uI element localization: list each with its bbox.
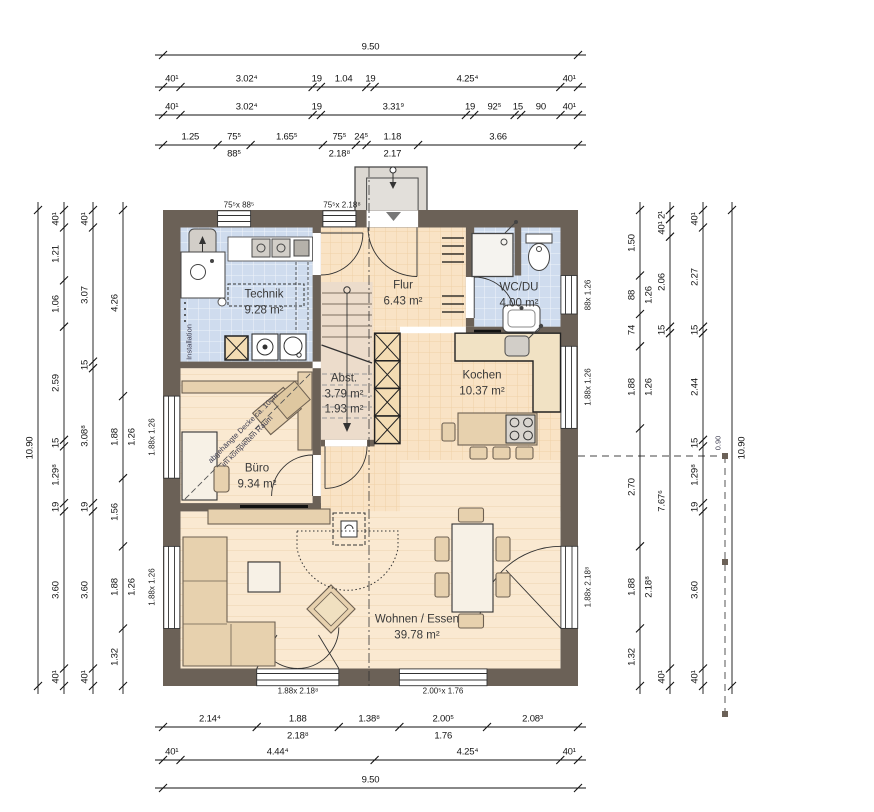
dim-sub-label: 88⁵ <box>227 149 241 160</box>
window-size-label: 1.88x 1.26 <box>148 568 157 605</box>
dim-label: 1.29⁸ <box>51 464 62 486</box>
dim-label: 1.88 <box>289 714 307 725</box>
window-size-label: 88x 1.26 <box>584 280 593 311</box>
dim-label: 1.88 <box>110 579 121 597</box>
dim-label: 40¹ <box>51 671 62 684</box>
dim-label: 40¹ <box>51 212 62 225</box>
dim-label: 3.66 <box>489 132 507 143</box>
dim-label: 1.50 <box>627 234 638 252</box>
window-size-label: 1.88x 1.26 <box>584 368 593 405</box>
dim-label: 74 <box>627 325 638 335</box>
dim-label: 2.14⁴ <box>199 714 221 725</box>
dim-label: 1.32 <box>110 648 121 666</box>
room-label-wohnen-essen: Wohnen / Essen39.78 m² <box>375 612 459 643</box>
dim-label: 40¹ <box>80 212 91 225</box>
dim-label: 15 <box>513 102 523 113</box>
dim-label: 1.38⁸ <box>358 714 380 725</box>
dim-label: 40¹ <box>690 212 701 225</box>
dim-label: 1.21 <box>51 245 62 263</box>
dim-label: 4.26 <box>110 294 121 312</box>
dim-label: 9.50 <box>362 42 380 53</box>
dim-label: 90 <box>536 102 546 113</box>
dim-label: 10.90 <box>737 437 748 460</box>
dim-label: 19 <box>365 74 375 85</box>
dim-label: 15 <box>80 360 91 370</box>
dim-label: 2.59 <box>51 374 62 392</box>
room-label-b-ro: Büro9.34 m² <box>238 461 277 492</box>
dim-label: 92⁵ <box>487 102 501 113</box>
dim-label: 9.50 <box>362 775 380 786</box>
dim-label: 15 <box>657 325 668 335</box>
dim-label: 19 <box>465 102 475 113</box>
dim-label: 19 <box>51 502 62 512</box>
dim-label: 75⁵ <box>227 132 241 143</box>
window-size-label: 75⁵x 2.18⁸ <box>323 201 360 210</box>
dim-label: 75⁵ <box>332 132 346 143</box>
dim-label: 1.88 <box>110 428 121 446</box>
dim-label: 7.67⁶ <box>657 490 668 511</box>
dim-label: 2.70 <box>627 478 638 496</box>
dim-sub-label: 1.76 <box>434 731 452 742</box>
dim-label: 3.60 <box>80 581 91 599</box>
room-label-abst-: Abst.3.79 m²1.93 m² <box>325 372 364 419</box>
dim-label: 3.07 <box>80 286 91 304</box>
dim-label: 19 <box>690 502 701 512</box>
dim-label: 1.88 <box>627 378 638 396</box>
room-label-flur: Flur6.43 m² <box>384 278 423 309</box>
dim-label: 15 <box>51 438 62 448</box>
dim-sub-label: 2.18⁸ <box>644 577 655 599</box>
dim-label: 40¹ <box>165 74 178 85</box>
window-size-label: 1.88x 2.18⁸ <box>584 567 593 608</box>
dim-label: 40¹ <box>657 671 668 684</box>
dim-label: 2.00⁵ <box>432 714 453 725</box>
dim-label: 15 <box>690 325 701 335</box>
window-size-label: 1.88x 2.18⁸ <box>278 687 319 696</box>
dim-label: 3.08⁸ <box>80 425 91 447</box>
dim-label: 2.27 <box>690 268 701 286</box>
room-label-wc-du: WC/DU4.00 m² <box>500 280 539 311</box>
dim-label: 1.06 <box>51 295 62 313</box>
dim-label: 40¹ <box>563 74 576 85</box>
dim-label: 40¹ <box>80 671 91 684</box>
dim-label: 40¹ <box>657 221 668 234</box>
dim-label: 1.04 <box>335 74 353 85</box>
dim-label: 1.56 <box>110 503 121 521</box>
dim-label: 3.60 <box>51 581 62 599</box>
room-label-kochen: Kochen10.37 m² <box>459 368 504 399</box>
annotation: Installation <box>185 324 194 360</box>
dim-label: 1.18 <box>383 132 401 143</box>
dim-label: 3.02⁴ <box>236 74 258 85</box>
dim-label: 10.90 <box>25 437 36 460</box>
window-size-label: 75⁵x 88⁵ <box>224 201 255 210</box>
dim-label: 1.65⁵ <box>276 132 297 143</box>
dim-label: 19 <box>312 74 322 85</box>
dim-sub-label: 2.17 <box>383 149 401 160</box>
dim-sub-label: 2.18⁸ <box>287 731 309 742</box>
dim-label: 40¹ <box>165 102 178 113</box>
dim-label: 19 <box>80 502 91 512</box>
dim-label: 1.29⁸ <box>690 464 701 486</box>
room-label-technik: Technik9.28 m² <box>245 287 284 318</box>
dim-label: 40¹ <box>690 671 701 684</box>
dim-label: 1.32 <box>627 648 638 666</box>
dim-label: 40¹ <box>563 102 576 113</box>
dim-label: 3.02⁴ <box>236 102 258 113</box>
dim-label: 24⁵ <box>354 132 368 143</box>
dim-label: 3.60 <box>690 581 701 599</box>
dim-label: 15 <box>690 438 701 448</box>
dim-sub-label: 1.26 <box>644 378 655 396</box>
dim-label: 88 <box>627 290 638 300</box>
dim-label: 40¹ <box>563 747 576 758</box>
floor-plan-canvas: 9.5040¹3.02⁴191.04194.25⁴40¹40¹3.02⁴193.… <box>0 0 874 812</box>
dim-label: 2.44 <box>690 378 701 396</box>
dim-sub-label: 2.18⁸ <box>329 149 351 160</box>
dim-label: 19 <box>312 102 322 113</box>
dim-label: 1.88 <box>627 578 638 596</box>
dim-label: 4.44⁴ <box>267 747 289 758</box>
annotation: 0.90 <box>714 436 723 451</box>
dim-label: 4.25⁴ <box>457 74 479 85</box>
dim-label: 1.25 <box>181 132 199 143</box>
dim-label: 4.25⁴ <box>457 747 479 758</box>
dim-label: 3.31⁹ <box>383 102 405 113</box>
window-size-label: 2.00⁵x 1.76 <box>423 687 464 696</box>
window-size-label: 1.88x 1.26 <box>148 418 157 455</box>
dim-label: 40¹ <box>165 747 178 758</box>
dim-label: 2¹ <box>657 211 668 219</box>
dim-label: 2.06 <box>657 273 668 291</box>
dim-sub-label: 1.26 <box>127 428 138 446</box>
dim-sub-label: 1.26 <box>644 286 655 304</box>
dim-label: 2.08³ <box>522 714 543 725</box>
dim-sub-label: 1.26 <box>127 579 138 597</box>
